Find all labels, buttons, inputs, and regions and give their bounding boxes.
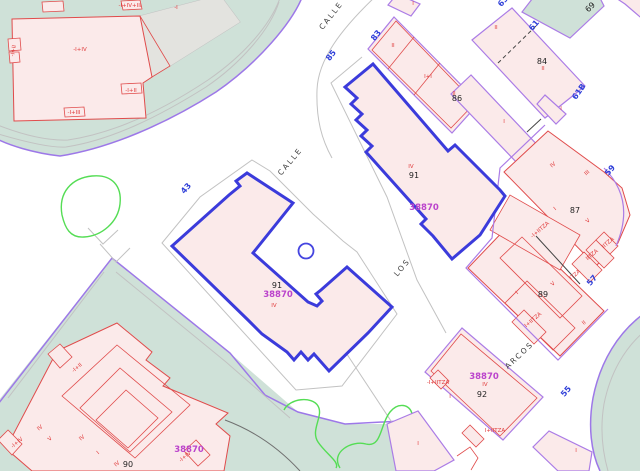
house-number-label: 90 <box>123 460 133 469</box>
cadastral-map-canvas: CALLECALLELOSARCOS438583636161B595755388… <box>0 0 640 471</box>
street-name-label: LOS <box>392 257 412 279</box>
street-number-label: 43 <box>179 181 193 195</box>
house-number-label: 84 <box>537 57 547 66</box>
green-area-bottom-right <box>591 312 640 471</box>
floor-code-label: -I <box>174 5 178 11</box>
floor-code-label: -I+IV+III <box>118 3 141 9</box>
floor-code-label: II <box>452 91 456 97</box>
house-bottom-right[interactable] <box>533 431 592 471</box>
house-number-label: 92 <box>477 390 487 399</box>
floor-code-label: -I+IV <box>73 47 87 53</box>
red-fragment-bottom <box>457 447 478 470</box>
house-92-annex-bottom[interactable] <box>462 425 484 447</box>
house-bottom-center[interactable] <box>387 411 454 471</box>
annex-tl-1[interactable] <box>42 1 64 12</box>
house-number-label: 91 <box>409 171 419 180</box>
street-name-label: CALLE <box>317 0 345 31</box>
parcel-ref-label[interactable]: 38870 <box>409 203 439 213</box>
floor-code-label: IV <box>408 164 414 170</box>
floor-code-label: IV <box>271 303 277 309</box>
parcel-ref-label[interactable]: 38870 <box>469 372 499 382</box>
street-name-label: ARCOS <box>503 340 535 371</box>
vegetation-contour-blob <box>61 176 120 237</box>
floor-code-label: I+IITZA <box>485 428 506 434</box>
floor-code-label: I+I <box>424 74 432 80</box>
street-name-label: CALLE <box>276 146 304 177</box>
parcel-ref-label[interactable]: 38870 <box>263 290 293 300</box>
floor-code-label: -I+III <box>67 110 80 116</box>
building-top-left[interactable] <box>12 16 152 121</box>
house-top-right-corner[interactable] <box>610 0 640 22</box>
house-row-top-partial[interactable] <box>388 0 420 16</box>
selection-marker-circle <box>299 244 314 259</box>
floor-code-label: II <box>541 66 545 72</box>
path-chevron-2 <box>100 244 130 262</box>
street-number-label: 55 <box>559 384 573 399</box>
house-number-label: 89 <box>538 290 548 299</box>
house-number-label: 91 <box>272 281 282 290</box>
house-number-label: 87 <box>570 206 580 215</box>
floor-code-label: II <box>494 25 498 31</box>
floor-code-label: II <box>391 43 395 49</box>
street-number-label: 85 <box>324 48 338 63</box>
cadastral-map-viewport[interactable]: CALLECALLELOSARCOS438583636161B595755388… <box>0 0 640 471</box>
floor-code-label: IV <box>482 382 488 388</box>
street-number-label: 63 <box>496 0 510 9</box>
floor-code-label: -I+II <box>125 88 137 94</box>
floor-code-label: -I+IITZA <box>427 380 450 386</box>
